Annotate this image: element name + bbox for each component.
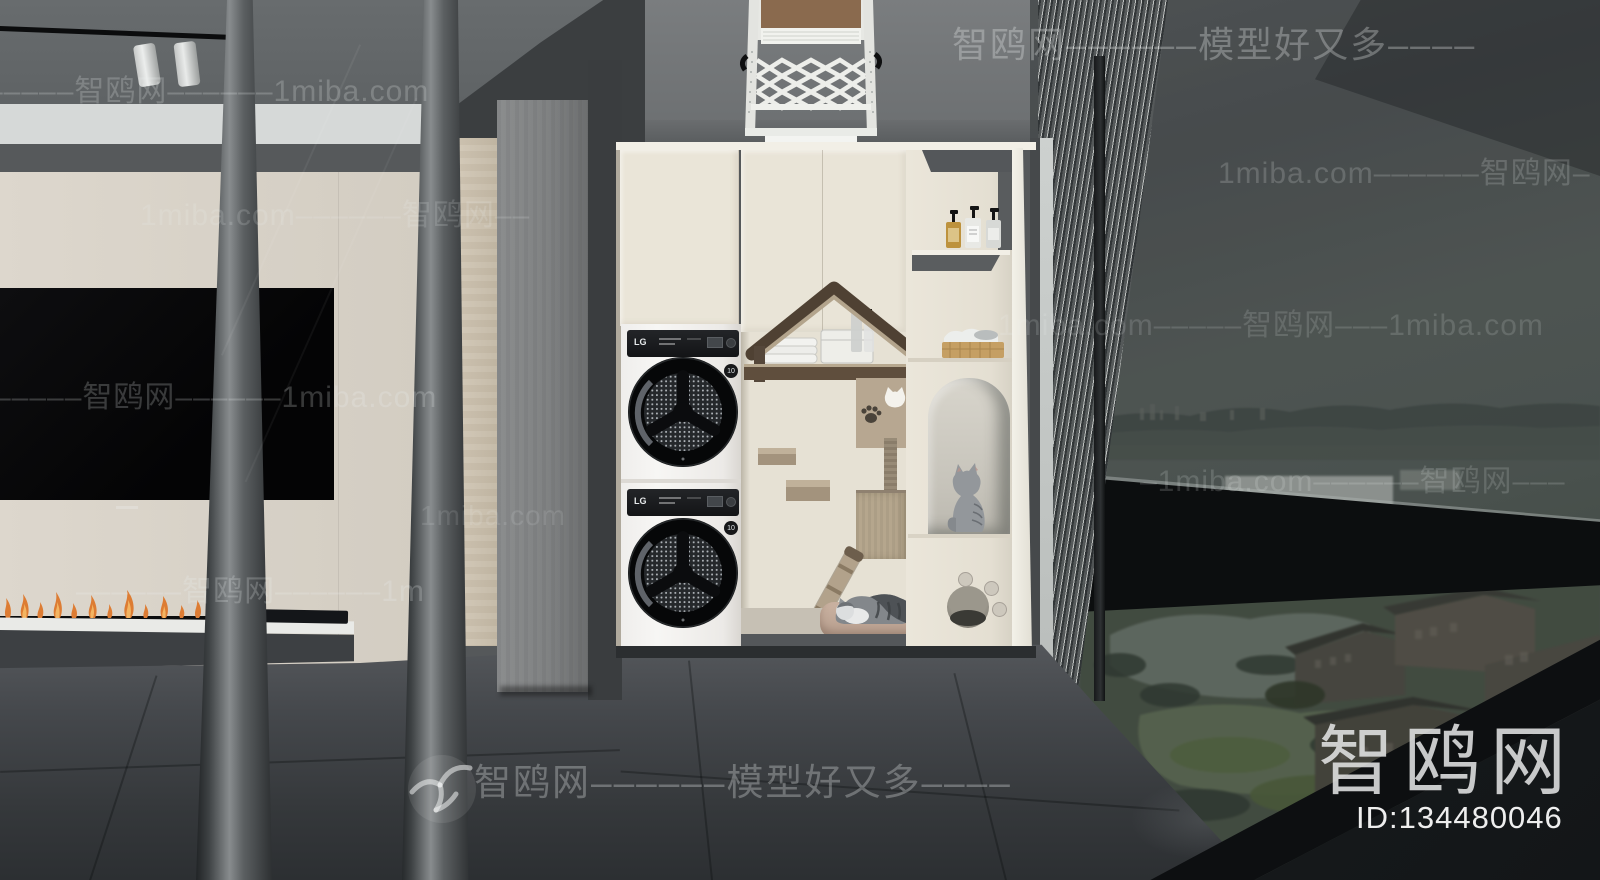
soap-bottles <box>944 204 1004 250</box>
panel-knob <box>726 338 736 348</box>
panel-display <box>707 496 723 507</box>
panel-text-line <box>687 338 701 340</box>
open-shelf-board <box>912 250 1010 255</box>
cabinet-door-upper-left <box>620 150 739 326</box>
sliding-door-grain <box>497 100 593 692</box>
dryer-drum <box>627 517 739 629</box>
under-shelf-shadow <box>912 255 1000 271</box>
panel-text-line <box>687 497 701 499</box>
render-canvas: LG 10 LG 10 <box>0 0 1600 880</box>
window-frame-vertical <box>1094 56 1105 701</box>
ladder-rung <box>838 563 854 574</box>
panel-text-line <box>659 343 675 345</box>
door-floor-shadow <box>500 686 592 696</box>
cat-step <box>786 480 830 487</box>
cat-climb-box <box>856 490 908 559</box>
floor-grout-line <box>953 673 1008 880</box>
paw-door-hole-small <box>958 572 973 587</box>
floor-grout-line <box>85 675 158 880</box>
panel-text-line <box>659 497 681 499</box>
warranty-badge: 10 <box>724 364 738 378</box>
scratch-post <box>884 438 897 492</box>
tv-logo-mark <box>116 506 138 509</box>
cabinet-side-panel <box>1012 148 1032 654</box>
warranty-badge: 10 <box>724 521 738 535</box>
cat-step-front <box>758 454 796 465</box>
paw-door-hole-small <box>984 581 999 596</box>
washer-control-panel: LG <box>627 330 739 357</box>
paw-door-hole-small <box>992 602 1007 617</box>
drying-rack <box>735 0 887 150</box>
panel-display <box>707 337 723 348</box>
towel-basket <box>940 322 1006 360</box>
floor-grout-line <box>0 749 620 773</box>
panel-text-line <box>659 338 681 340</box>
cabinet-base-shadow <box>616 646 1036 658</box>
shelf-soffit-dark <box>922 150 1012 172</box>
washer-drum <box>627 356 739 468</box>
floor-grout-line <box>688 661 714 880</box>
panel-knob <box>726 497 736 507</box>
dryer-brand-label: LG <box>634 496 647 506</box>
paw-print-icon <box>860 404 882 426</box>
seagull-icon <box>398 752 486 826</box>
cat-sitting <box>940 460 992 534</box>
model-id-label: ID:134480046 <box>1356 800 1563 836</box>
column-divider <box>908 534 1012 538</box>
site-logo: 智鸥网 <box>1318 700 1576 810</box>
cat-head-cutout <box>882 386 908 410</box>
washer-brand-label: LG <box>634 337 647 347</box>
dryer-control-panel: LG <box>627 489 739 516</box>
column-divider <box>908 358 1012 362</box>
cat-step-front <box>786 487 830 501</box>
wall-corner-light-edge <box>1040 138 1053 698</box>
media-device <box>260 609 348 624</box>
panel-text-line <box>659 502 675 504</box>
paw-door-hole-shadow <box>950 610 986 626</box>
wall-seam <box>338 172 339 647</box>
